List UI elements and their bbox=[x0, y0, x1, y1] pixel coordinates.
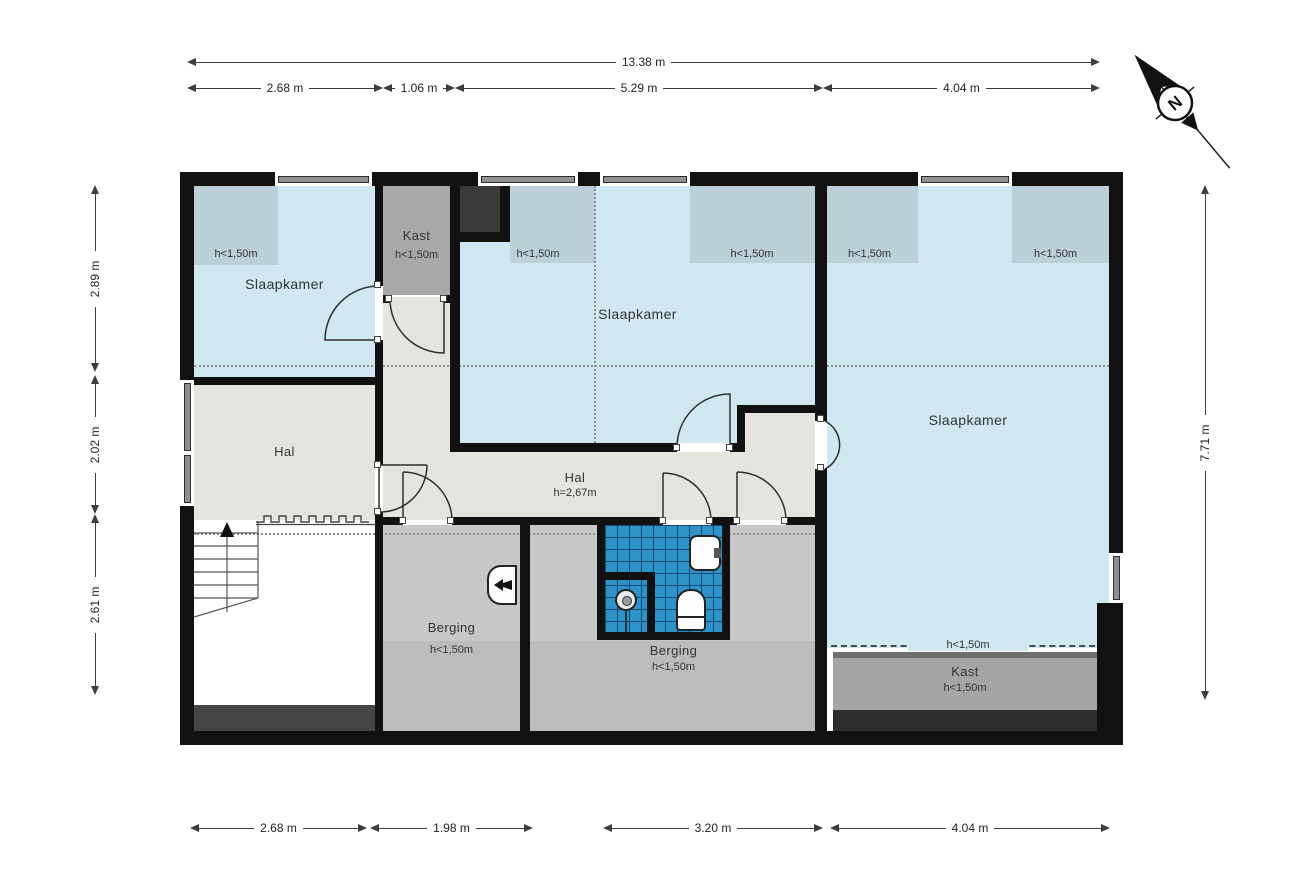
jamb bbox=[659, 517, 666, 524]
dim-bottom-3: 3.20 m bbox=[603, 822, 823, 834]
jamb bbox=[673, 444, 680, 451]
jamb bbox=[447, 517, 454, 524]
dim-bottom-2: 1.98 m bbox=[370, 822, 533, 834]
door-kast-top bbox=[390, 299, 444, 353]
label-slaapkamer-right: Slaapkamer bbox=[827, 412, 1109, 428]
label-hal-center: Hal bbox=[500, 470, 650, 485]
dim-top-3: 5.29 m bbox=[455, 82, 823, 94]
dim-label: 13.38 m bbox=[616, 56, 671, 68]
dim-bottom-1: 2.68 m bbox=[190, 822, 367, 834]
jamb bbox=[374, 461, 381, 468]
door-slaapkamer-tl bbox=[325, 286, 379, 340]
jamb bbox=[399, 517, 406, 524]
dim-left-1: 2.89 m bbox=[88, 185, 102, 372]
height-note-right-b: h<1,50m bbox=[1013, 248, 1098, 260]
jamb bbox=[385, 295, 392, 302]
dim-top-1: 2.68 m bbox=[187, 82, 383, 94]
label-hal-center-height: h=2,67m bbox=[500, 487, 650, 499]
dim-total-width: 13.38 m bbox=[187, 56, 1100, 68]
height-note-berging-left: h<1,50m bbox=[383, 644, 520, 656]
jamb bbox=[817, 464, 824, 471]
dim-bottom-4: 4.04 m bbox=[830, 822, 1110, 834]
door-berging-center bbox=[737, 472, 786, 521]
jamb bbox=[374, 336, 381, 343]
height-note-kast-top: h<1,50m bbox=[383, 249, 450, 261]
door-berging-left bbox=[403, 472, 452, 521]
dim-top-4: 4.04 m bbox=[823, 82, 1100, 94]
door-bathroom bbox=[663, 473, 711, 521]
label-berging-left: Berging bbox=[383, 620, 520, 635]
label-slaapkamer-tl: Slaapkamer bbox=[194, 276, 375, 292]
label-berging-center: Berging bbox=[530, 643, 817, 658]
jamb bbox=[817, 415, 824, 422]
height-note-kast-bottom: h<1,50m bbox=[833, 682, 1097, 694]
height-note-mid-left: h<1,50m bbox=[498, 248, 578, 260]
floorplan-canvas: h<1,50m bbox=[0, 0, 1300, 890]
height-note-mid-right: h<1,50m bbox=[712, 248, 792, 260]
door-slaapkamer-right bbox=[825, 421, 840, 469]
door-slaapkamer-mid bbox=[677, 394, 730, 447]
jamb bbox=[726, 444, 733, 451]
dim-top-2: 1.06 m bbox=[383, 82, 455, 94]
label-hal-left: Hal bbox=[194, 444, 375, 459]
label-kast-bottom: Kast bbox=[833, 664, 1097, 679]
compass-rose: N bbox=[1100, 38, 1280, 173]
height-note-berging-center: h<1,50m bbox=[530, 661, 817, 673]
height-note-tl: h<1,50m bbox=[196, 248, 276, 260]
dim-left-2: 2.02 m bbox=[88, 375, 102, 514]
label-kast-top: Kast bbox=[383, 228, 450, 243]
jamb bbox=[374, 281, 381, 288]
jamb bbox=[706, 517, 713, 524]
height-note-right-a: h<1,50m bbox=[827, 248, 912, 260]
dim-right-total: 7.71 m bbox=[1198, 185, 1212, 700]
jamb bbox=[440, 295, 447, 302]
jamb bbox=[781, 517, 788, 524]
jamb bbox=[733, 517, 740, 524]
jamb bbox=[374, 508, 381, 515]
label-slaapkamer-mid: Slaapkamer bbox=[460, 306, 815, 322]
dim-left-3: 2.61 m bbox=[88, 514, 102, 695]
